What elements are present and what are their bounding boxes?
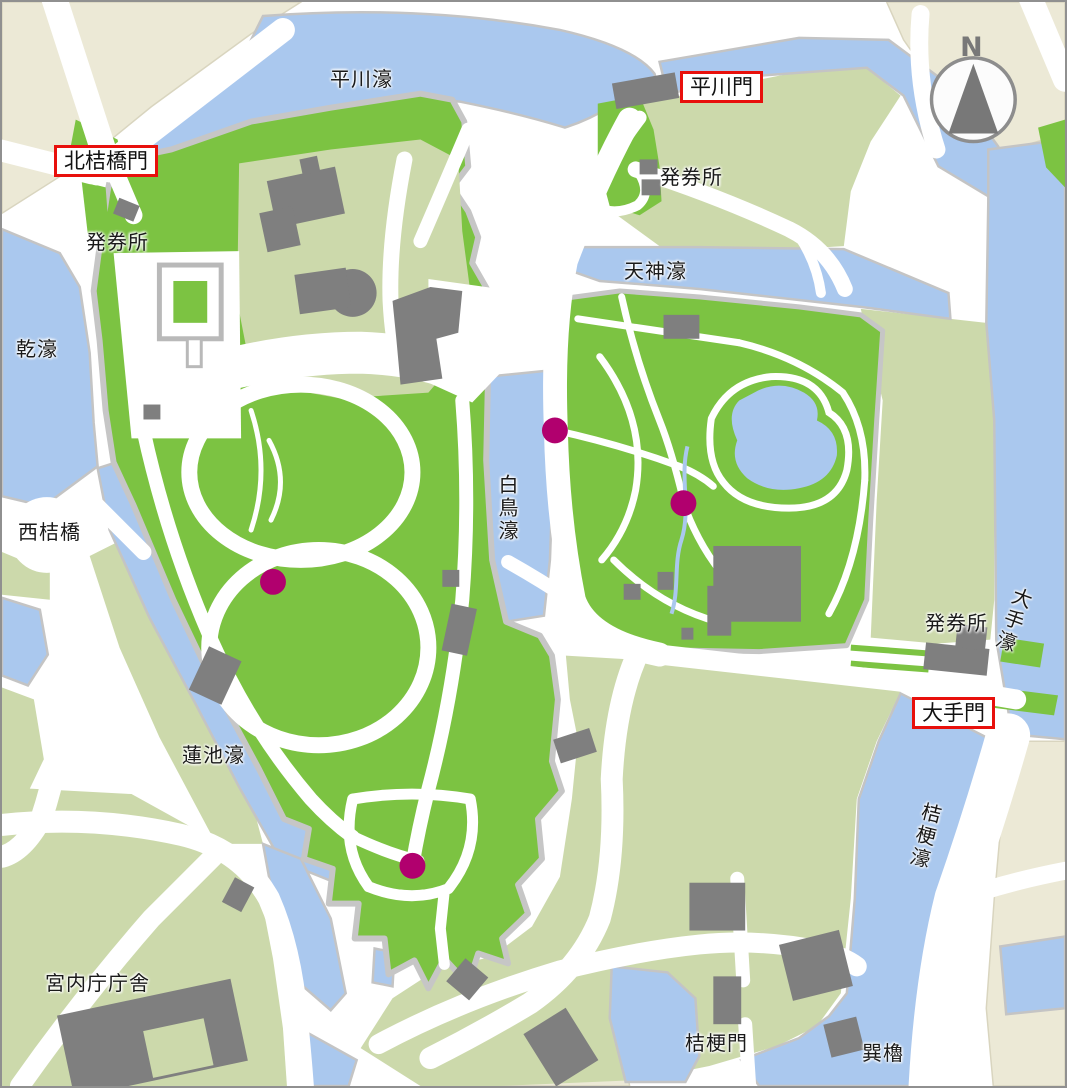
label-ote-gate: 大手門 [912,697,995,729]
map-canvas: N [2,2,1065,1086]
poi-marker[interactable] [542,417,568,443]
label-ticket-office-east: 発券所 [925,612,988,634]
label-nishi-hanebashi: 西桔橋 [18,521,81,543]
poi-marker[interactable] [670,490,696,516]
label-ticket-office-north: 発券所 [660,166,723,188]
label-hasuike-moat: 蓮池濠 [182,744,245,766]
sannomaru-building [713,546,801,622]
label-inui-moat: 乾濠 [16,338,58,360]
label-hirakawa-moat: 平川濠 [330,68,393,90]
label-tatsumi-yagura: 巽櫓 [862,1042,904,1064]
label-ticket-office-west: 発券所 [86,231,149,253]
compass-n-label: N [960,32,983,63]
label-kunaicho-chosha: 宮内庁庁舎 [45,972,150,994]
kikyo-gate-building [713,976,741,1024]
label-tenjin-moat: 天神濠 [624,260,687,282]
label-kitahanebashi-gate: 北桔橋門 [54,145,158,177]
poi-marker[interactable] [260,569,286,595]
label-hakucho-moat: 白鳥濠 [496,474,518,543]
palace-garden-map: N 平川濠 平川門 北桔橋門 発券所 発券所 天神濠 乾濠 西桔橋 白鳥濠 大手… [0,0,1067,1088]
label-hirakawa-gate: 平川門 [680,71,763,103]
poi-marker[interactable] [400,853,426,879]
label-kikyo-gate: 桔梗門 [685,1032,748,1054]
